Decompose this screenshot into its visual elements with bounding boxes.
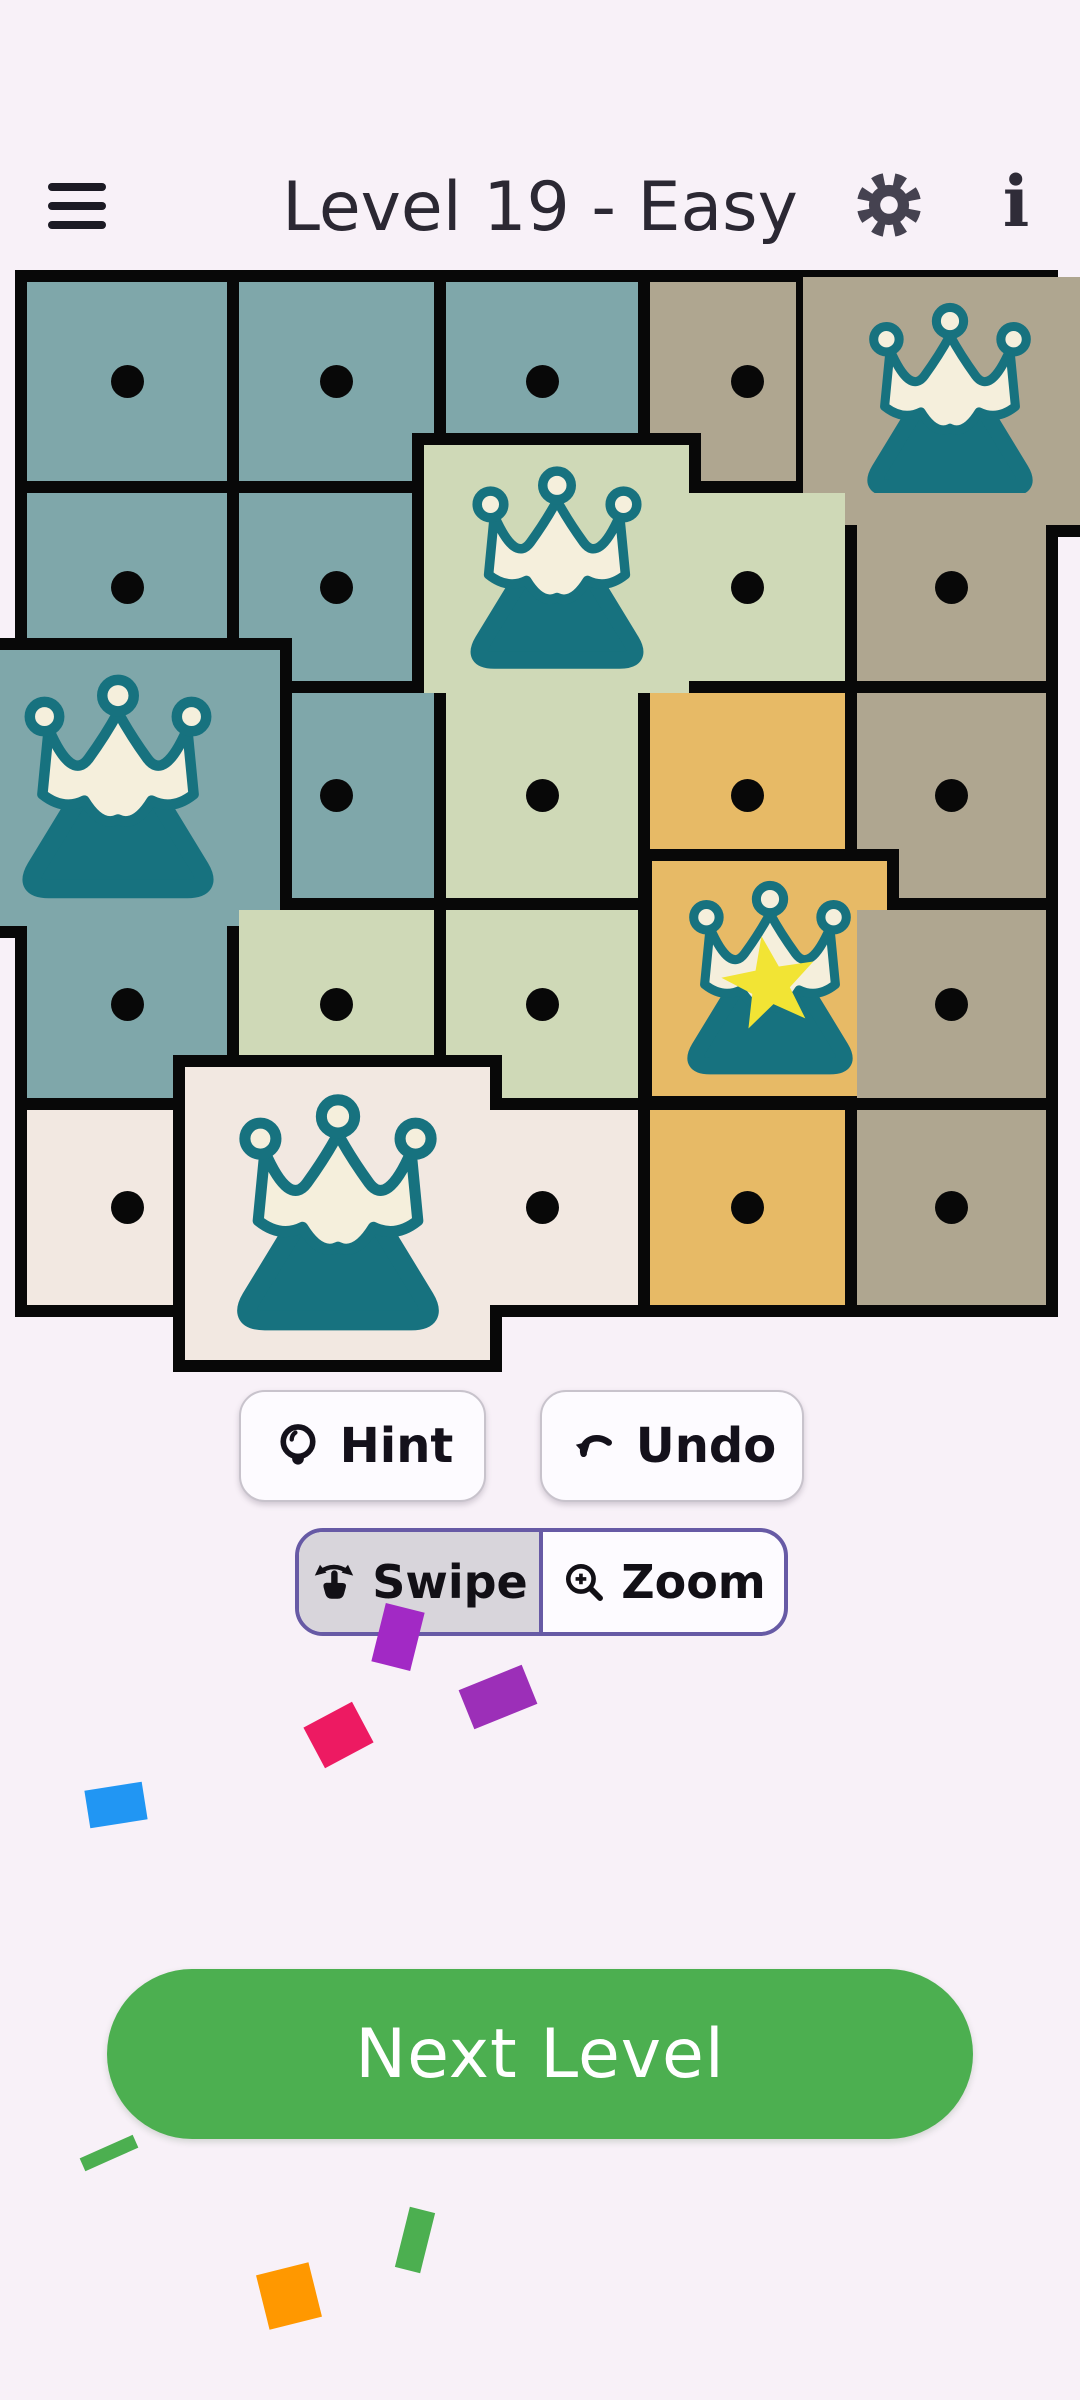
crown-mountain-icon <box>205 1081 471 1347</box>
dot-mark <box>935 571 968 604</box>
hint-label: Hint <box>340 1418 454 1474</box>
dot-mark <box>731 365 764 398</box>
swipe-label: Swipe <box>372 1555 528 1609</box>
crown-mountain-icon <box>443 455 671 683</box>
crown-mountain-icon <box>841 292 1059 510</box>
board-cell-r2c4[interactable] <box>650 493 845 681</box>
board-cell-r4c5[interactable] <box>857 910 1046 1098</box>
undo-arrow-icon <box>568 1420 620 1472</box>
puzzle-board[interactable] <box>15 270 1058 1317</box>
dot-mark <box>111 571 144 604</box>
dot-mark <box>526 365 559 398</box>
board-cell-r1c1[interactable] <box>27 282 227 481</box>
dot-mark <box>731 571 764 604</box>
next-level-label: Next Level <box>355 2015 725 2094</box>
confetti-piece <box>303 1702 373 1768</box>
board-cell-r5c5[interactable] <box>857 1110 1046 1305</box>
board-cell-r1c2[interactable] <box>239 282 434 481</box>
app-screen: Level 19 - Easy i Hint Undo <box>0 0 1080 2400</box>
mode-toggle: Swipe Zoom <box>295 1528 788 1636</box>
dot-mark <box>526 779 559 812</box>
dot-mark <box>526 988 559 1021</box>
dot-mark <box>111 988 144 1021</box>
board-cell-r2c5[interactable] <box>857 493 1046 681</box>
confetti-piece <box>256 2262 322 2329</box>
undo-button[interactable]: Undo <box>540 1390 804 1502</box>
gear-icon <box>856 172 922 238</box>
settings-button[interactable] <box>856 172 922 238</box>
crown-mountain-icon <box>0 662 244 914</box>
next-level-button[interactable]: Next Level <box>107 1969 973 2139</box>
dot-mark <box>731 1191 764 1224</box>
confetti-piece <box>84 1782 147 1829</box>
zoom-magnifier-icon <box>561 1559 607 1605</box>
dot-mark <box>731 779 764 812</box>
confetti-piece <box>80 2135 139 2171</box>
confetti-piece <box>459 1665 538 1729</box>
board-cell-r3c3[interactable] <box>446 693 638 898</box>
info-button[interactable]: i <box>992 160 1040 240</box>
board-cell-r5c3[interactable] <box>446 1110 638 1305</box>
dot-mark <box>320 365 353 398</box>
dot-mark <box>320 988 353 1021</box>
zoom-label: Zoom <box>621 1555 766 1609</box>
dot-mark <box>111 1191 144 1224</box>
dot-mark <box>526 1191 559 1224</box>
dot-mark <box>111 365 144 398</box>
crown-mountain-icon <box>661 870 879 1088</box>
mode-option-zoom[interactable]: Zoom <box>539 1532 784 1632</box>
hint-button[interactable]: Hint <box>239 1390 486 1502</box>
dot-mark <box>320 571 353 604</box>
confetti-piece <box>395 2207 435 2273</box>
board-cell-r5c4[interactable] <box>650 1110 845 1305</box>
dot-mark <box>935 1191 968 1224</box>
dot-mark <box>320 779 353 812</box>
dot-mark <box>935 779 968 812</box>
lightbulb-icon <box>272 1420 324 1472</box>
board-cell-r3c1[interactable] <box>0 638 292 938</box>
dot-mark <box>935 988 968 1021</box>
info-icon: i <box>1003 160 1030 243</box>
undo-label: Undo <box>636 1418 776 1474</box>
swipe-gesture-icon <box>310 1558 358 1606</box>
